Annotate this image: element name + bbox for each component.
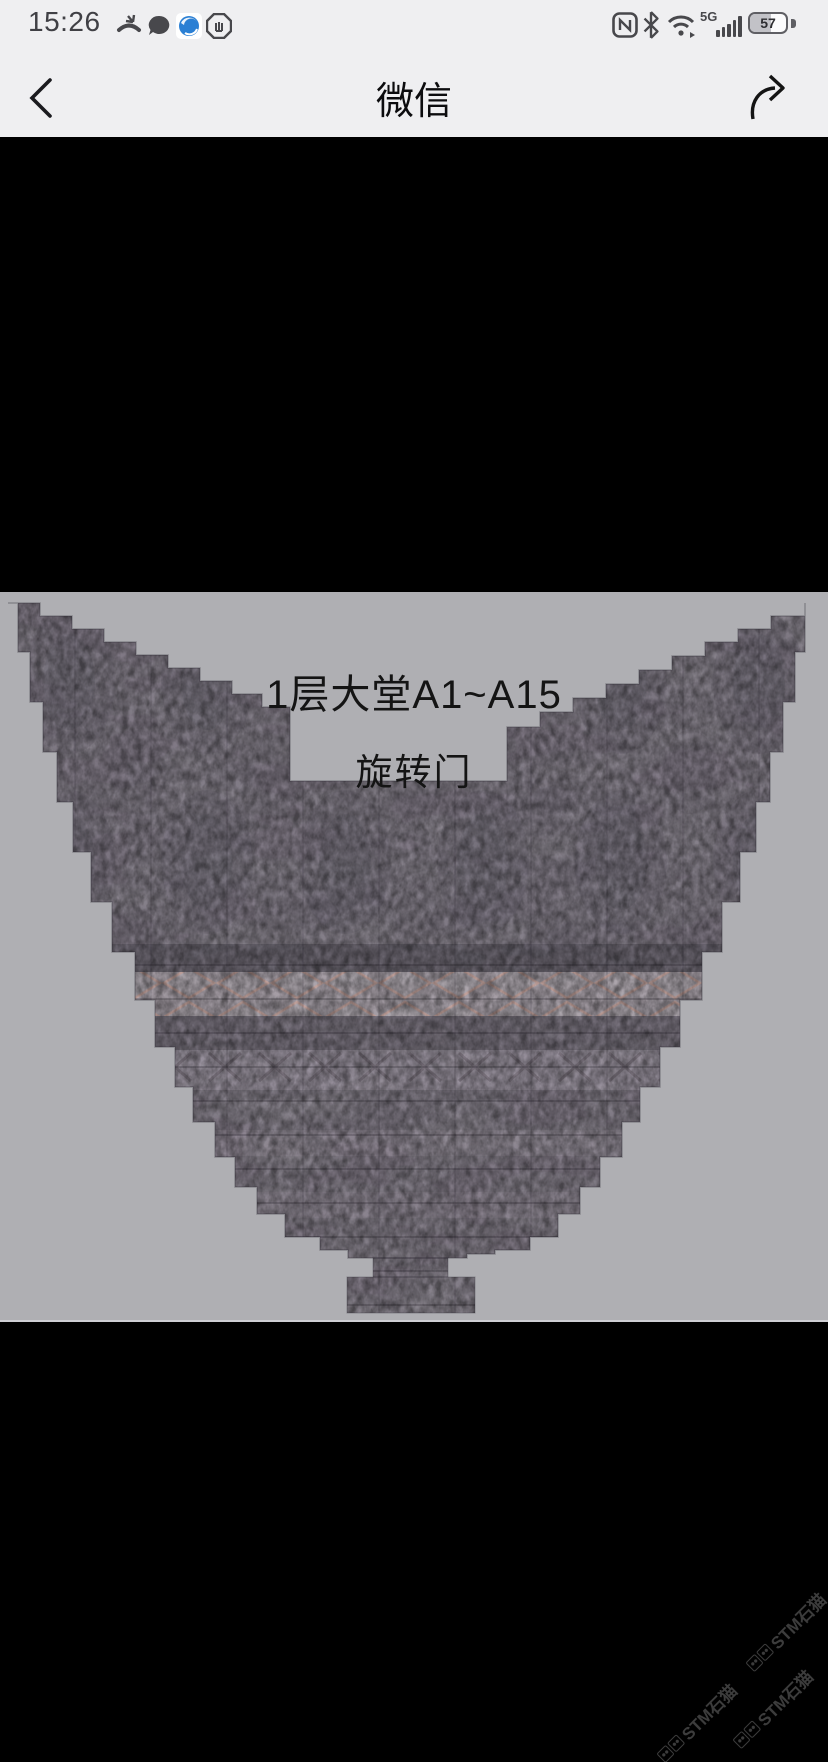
stonecat-logo-icon bbox=[656, 1734, 685, 1762]
battery-percent: 57 bbox=[750, 14, 786, 32]
watermark: STM石猫 bbox=[652, 1678, 742, 1762]
image-viewer[interactable]: 1层大堂A1~A15 旋转门 STM石猫 STM石猫 STM石猫 bbox=[0, 137, 828, 1762]
missed-call-icon bbox=[116, 13, 142, 39]
clock: 15:26 bbox=[28, 6, 101, 38]
battery-tip bbox=[791, 19, 796, 28]
page-title: 微信 bbox=[0, 70, 828, 125]
hand-octagon-icon bbox=[206, 13, 232, 39]
watermark: STM石猫 bbox=[728, 1664, 818, 1754]
battery-icon: 57 bbox=[748, 12, 788, 34]
stone-layout-image[interactable]: 1层大堂A1~A15 旋转门 bbox=[0, 592, 828, 1322]
nfc-icon bbox=[612, 12, 638, 38]
nav-bar: 微信 bbox=[0, 48, 828, 137]
watermark: STM石猫 bbox=[741, 1587, 828, 1677]
wifi-icon bbox=[666, 13, 696, 39]
header: 15:26 5G bbox=[0, 0, 828, 137]
area-label: 1层大堂A1~A15 bbox=[0, 662, 828, 720]
network-type-label: 5G bbox=[700, 9, 717, 24]
browser-app-icon bbox=[176, 13, 202, 39]
revolving-door-label: 旋转门 bbox=[0, 742, 828, 796]
stonecat-logo-icon bbox=[732, 1720, 761, 1749]
stonecat-logo-icon bbox=[745, 1643, 774, 1672]
watermark-text: STM石猫 bbox=[764, 1587, 828, 1654]
wechat-image-viewer: 15:26 5G bbox=[0, 0, 828, 1762]
share-button[interactable] bbox=[744, 72, 794, 124]
signal-bars-icon bbox=[716, 13, 744, 37]
status-bar: 15:26 5G bbox=[0, 0, 828, 48]
message-icon bbox=[146, 13, 172, 39]
bluetooth-icon bbox=[642, 11, 660, 39]
